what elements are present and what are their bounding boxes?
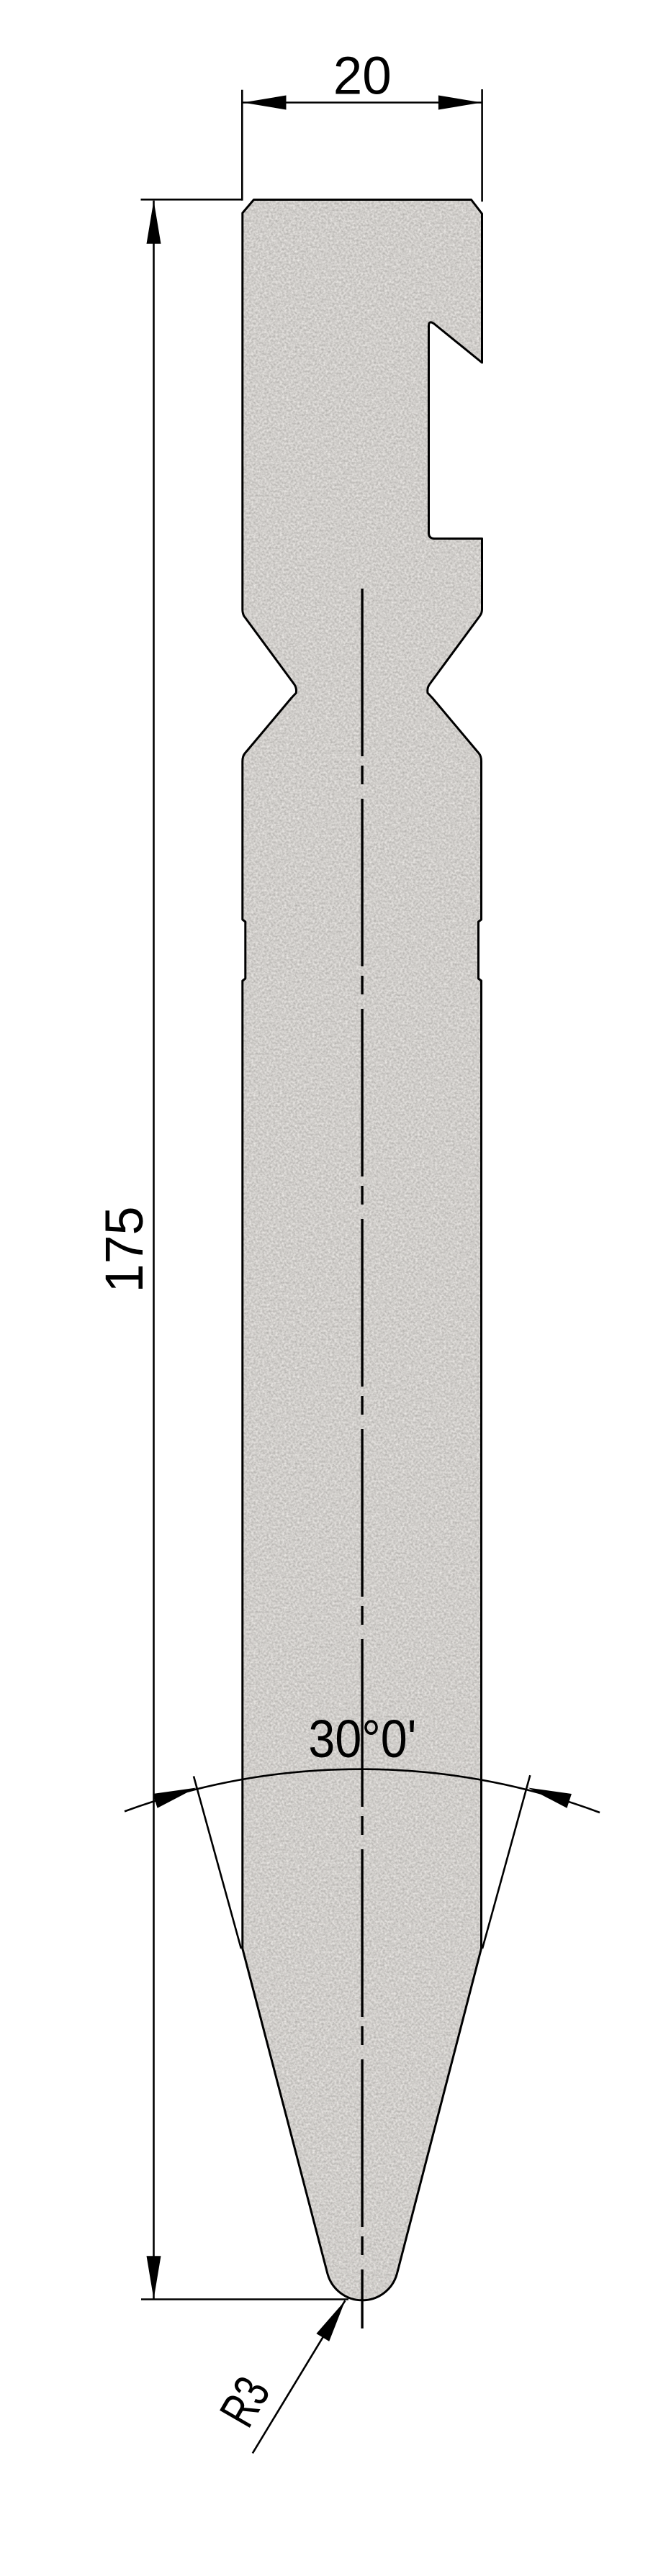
svg-text:20: 20	[333, 46, 392, 106]
svg-text:30°0': 30°0'	[308, 1709, 416, 1769]
svg-text:175: 175	[94, 1207, 154, 1293]
